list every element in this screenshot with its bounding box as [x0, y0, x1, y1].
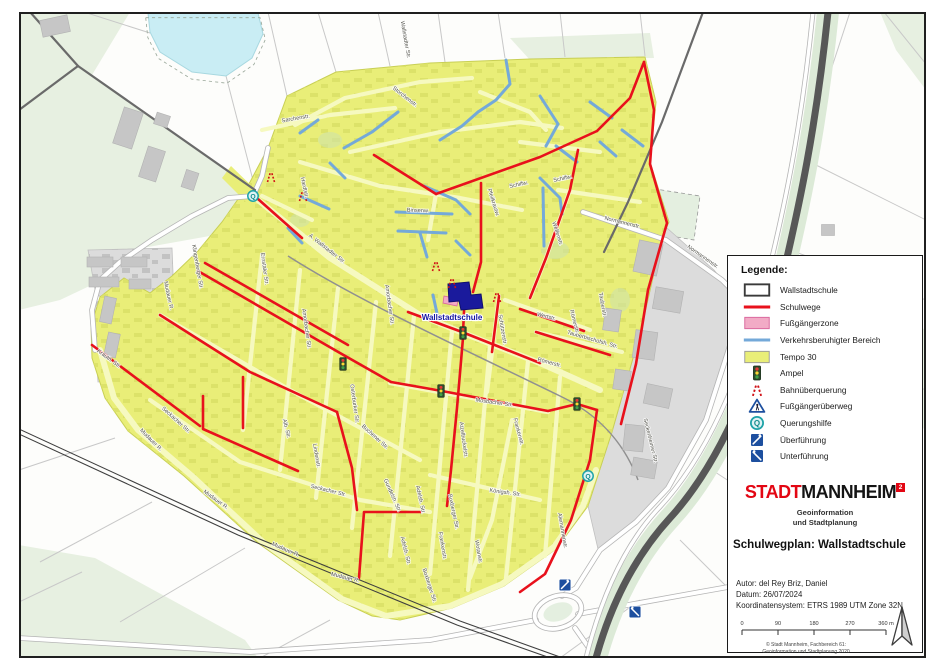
building — [632, 330, 658, 361]
fussgaengerueberweg-icon — [750, 400, 765, 412]
querungshilfe-icon: Q — [248, 191, 258, 201]
verkehrsberuhigt-route — [543, 188, 544, 246]
schulwege-swatch — [741, 299, 773, 315]
brand-department: Geoinformation und Stadtplanung — [728, 508, 922, 529]
tempo30-swatch — [741, 349, 773, 365]
building — [121, 257, 147, 267]
legend-item-bahnueberquerung: Bahnüberquerung — [741, 382, 916, 399]
unterfuehrung-icon — [741, 448, 773, 464]
map-frame: WallstadtschuleQQSarchenstr.Storchenstr.… — [19, 12, 926, 658]
stadt-mannheim-logo: STADTMANNHEIM2 — [728, 482, 922, 503]
dept-line1: Geoinformation — [728, 508, 922, 518]
brand-mannheim: MANNHEIM — [801, 482, 896, 502]
querungshilfe-icon: Q — [741, 415, 773, 431]
legend-item-label: Wallstadtschule — [780, 285, 838, 295]
building — [623, 424, 646, 452]
date-line: Datum: 26/07/2024 — [736, 589, 918, 600]
legend-item-tempo30: Tempo 30 — [741, 348, 916, 365]
ampel-icon — [574, 398, 580, 411]
legend-item-verkehrsberuhigter-bereich: Verkehrsberuhigter Bereich — [741, 332, 916, 349]
bahnueberquerung-icon — [753, 385, 761, 396]
scale-tick-label: 0 — [740, 621, 743, 627]
copyright-line2: Geoinformation und Stadtplanung 2020 — [728, 649, 884, 656]
legend-item-label: Überführung — [780, 435, 826, 445]
legend-item-ampel: Ampel — [741, 365, 916, 382]
legend-item-school-extent: Wallstadtschule — [741, 282, 916, 299]
dept-line2: und Stadtplanung — [728, 518, 922, 528]
north-arrow-right — [902, 607, 912, 645]
legend-item-schulwege: Schulwege — [741, 299, 916, 316]
legend-item-querungshilfe: QQuerungshilfe — [741, 415, 916, 432]
building — [129, 279, 151, 289]
legend-item-fussgaengerueberweg: Fußgängerüberweg — [741, 398, 916, 415]
street-label: Binsenw. — [407, 208, 430, 215]
school-extent-swatch — [741, 282, 773, 298]
ueberfuehrung-icon — [751, 433, 764, 446]
building — [613, 369, 632, 391]
legend-item-label: Verkehrsberuhigter Bereich — [780, 335, 881, 345]
building — [822, 225, 835, 236]
copyright-note: © Stadt Mannheim, Fachbereich 61: Geoinf… — [728, 642, 884, 656]
ampel-icon — [753, 366, 760, 380]
plan-title: Schulwegplan: Wallstadtschule — [733, 538, 920, 551]
brand-superscript: 2 — [896, 483, 905, 492]
legend-item-label: Schulwege — [780, 302, 821, 312]
unterfuehrung-icon — [751, 450, 764, 463]
legend-item-fussgaengerzone: Fußgängerzone — [741, 315, 916, 332]
legend-item-label: Querungshilfe — [780, 418, 832, 428]
school-label: Wallstadtschule — [422, 313, 483, 322]
svg-text:Q: Q — [754, 419, 760, 428]
unterfuehrung-icon — [629, 606, 641, 618]
legend-item-label: Bahnüberquerung — [780, 385, 846, 395]
ampel-icon — [741, 365, 773, 381]
scale-tick-label: 90 — [775, 621, 781, 627]
ampel-icon — [438, 385, 444, 398]
north-arrow — [887, 604, 917, 648]
scale-tick-label: 180 — [809, 621, 818, 627]
legend-item-label: Fußgängerüberweg — [780, 401, 852, 411]
legend-item-label: Ampel — [780, 368, 804, 378]
scale-bar: 090180270360 m — [736, 616, 902, 640]
ampel-icon — [340, 358, 346, 371]
verkehrsberuhigter-bereich-swatch — [741, 332, 773, 348]
building — [652, 287, 683, 314]
building — [87, 257, 113, 267]
fussgaengerzone-swatch — [741, 315, 773, 331]
legend-item-label: Fußgängerzone — [780, 318, 839, 328]
legend-title: Legende: — [741, 264, 788, 276]
building — [89, 277, 119, 287]
svg-text:Q: Q — [585, 473, 590, 480]
querungshilfe-icon: Q — [751, 417, 763, 429]
fussgaengerueberweg-icon — [741, 398, 773, 414]
copyright-line1: © Stadt Mannheim, Fachbereich 61: — [728, 642, 884, 649]
ueberfuehrung-icon — [559, 579, 571, 591]
verkehrsberuhigt-route — [398, 231, 446, 233]
bahnueberquerung-icon — [741, 382, 773, 398]
svg-text:Q: Q — [250, 193, 255, 200]
brand-stadt: STADT — [745, 482, 801, 502]
green-patch — [318, 132, 342, 148]
querungshilfe-icon: Q — [583, 471, 593, 481]
ueberfuehrung-icon — [741, 432, 773, 448]
ampel-icon — [460, 327, 466, 340]
legend-items: WallstadtschuleSchulwegeFußgängerzoneVer… — [741, 282, 916, 465]
legend-item-unterfuehrung: Unterführung — [741, 448, 916, 465]
scale-tick-label: 270 — [845, 621, 854, 627]
green-patch — [610, 288, 630, 312]
legend-item-label: Tempo 30 — [780, 352, 816, 362]
legend-item-ueberfuehrung: Überführung — [741, 431, 916, 448]
legend-panel: Legende: WallstadtschuleSchulwegeFußgäng… — [727, 255, 923, 653]
legend-item-label: Unterführung — [780, 451, 828, 461]
author-line: Autor: del Rey Briz, Daniel — [736, 578, 918, 589]
north-arrow-left — [892, 607, 902, 645]
